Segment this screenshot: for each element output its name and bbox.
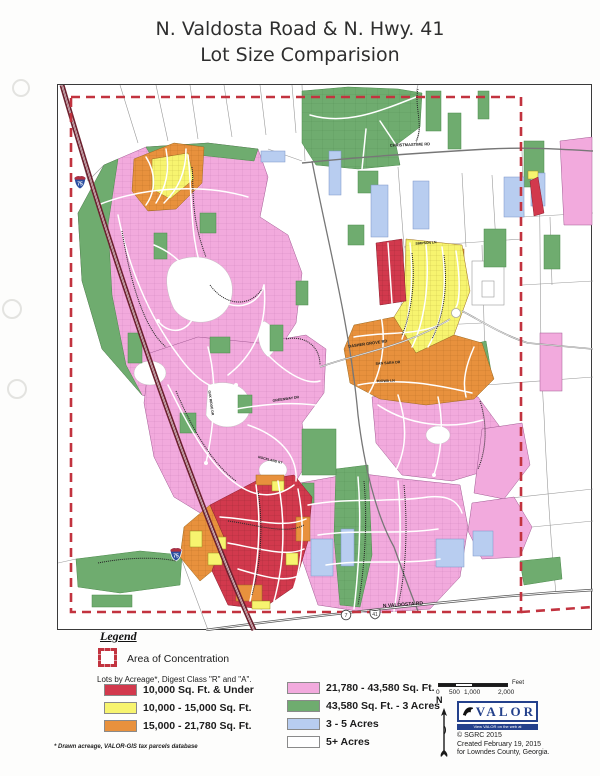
punch-hole (2, 299, 22, 319)
area-of-concentration-swatch (98, 648, 117, 667)
scale-unit-label: Feet (512, 680, 524, 686)
legend-swatch-pink (287, 682, 320, 694)
kiowa-ln-label: KIOWA LN (377, 379, 395, 384)
legend-swatch-blue (287, 718, 320, 730)
legend-swatch-orange (104, 720, 137, 732)
legend-swatch-green (287, 700, 320, 712)
eagle-icon (461, 704, 476, 719)
legend-heading: Lots by Acreage*, Digest Class "R" and "… (97, 675, 252, 684)
cluster-east (344, 239, 494, 405)
valor-logo: VALOR (457, 701, 538, 722)
legend-label-red: 10,000 Sq. Ft. & Under (143, 684, 254, 696)
route-41-label: 41 (372, 612, 378, 618)
legend-label-pink: 21,780 - 43,580 Sq. Ft. (326, 682, 435, 694)
legend-swatch-yellow (104, 702, 137, 714)
legend-title: Legend (100, 629, 137, 644)
valor-tagline: View VALOR on the web at WWW.VALORGIS.CO… (457, 724, 538, 730)
christmastime-rd-label: CHRISTMASTIME RD (390, 141, 430, 147)
legend-swatch-red (104, 684, 137, 696)
scanned-map-page: N. Valdosta Road & N. Hwy. 41 Lot Size C… (0, 0, 600, 776)
i75-shield-label: 75 (173, 554, 179, 560)
north-label: N (436, 695, 443, 705)
legend-label-white: 5+ Acres (326, 736, 370, 748)
scale-tick-500: 500 (449, 689, 460, 696)
legend-swatch-white (287, 736, 320, 748)
north-arrow-icon (438, 706, 450, 758)
legend-label-green: 43,580 Sq. Ft. - 3 Acres (326, 700, 440, 712)
legend-label-orange: 15,000 - 21,780 Sq. Ft. (143, 720, 252, 732)
punch-hole (7, 379, 27, 399)
credit-line-1: © SGRC 2015 (457, 732, 549, 741)
area-of-concentration-label: Area of Concentration (127, 653, 229, 665)
map-credits: © SGRC 2015 Created February 19, 2015 fo… (457, 732, 549, 758)
page-title: N. Valdosta Road & N. Hwy. 41 Lot Size C… (0, 16, 600, 68)
legend-footnote: * Drawn acreage, VALOR-GIS tax parcels d… (54, 744, 198, 750)
state-route-7-shield: 7 (341, 610, 351, 620)
map-canvas: 75 75 7 41 CHRISTMASTIME RD N VALDOSTA R… (57, 84, 592, 630)
scale-tick-1000: 1,000 (464, 689, 480, 696)
punch-hole (12, 79, 30, 97)
legend-label-yellow: 10,000 - 15,000 Sq. Ft. (143, 702, 252, 714)
us-route-41-shield: 41 (370, 610, 380, 620)
scale-tick-2000: 2,000 (498, 689, 514, 696)
valor-logo-text: VALOR (476, 704, 536, 720)
title-line-1: N. Valdosta Road & N. Hwy. 41 (0, 16, 600, 42)
credit-line-2: Created February 19, 2015 (457, 741, 549, 750)
legend-label-blue: 3 - 5 Acres (326, 718, 379, 730)
scale-bar-segments (438, 683, 508, 687)
credit-line-3: for Lowndes County, Georgia. (457, 749, 549, 758)
interstate-75-shield: 75 (74, 176, 86, 189)
i75-shield-label: 75 (77, 182, 83, 188)
title-line-2: Lot Size Comparision (0, 42, 600, 68)
route-7-label: 7 (344, 613, 347, 619)
